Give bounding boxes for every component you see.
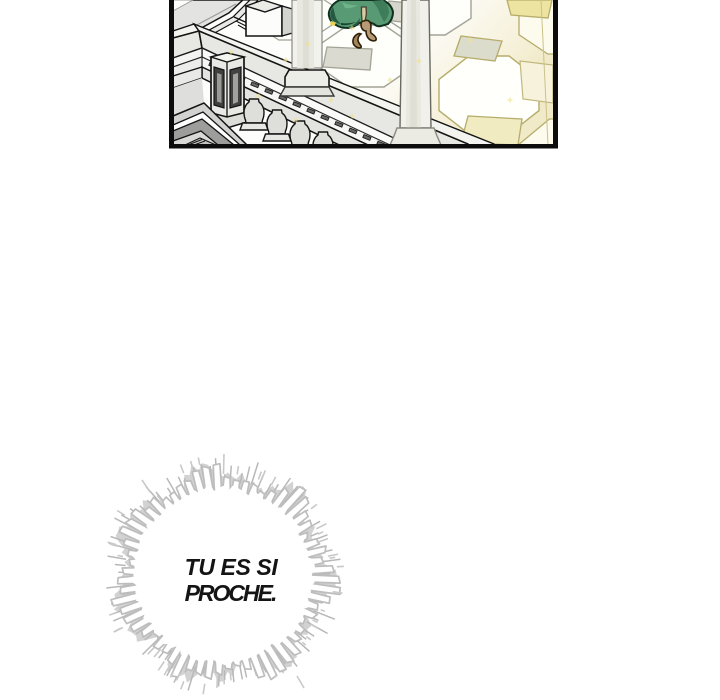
svg-text:TU ES SI: TU ES SI <box>185 554 279 580</box>
svg-text:PROCHE.: PROCHE. <box>185 580 276 606</box>
